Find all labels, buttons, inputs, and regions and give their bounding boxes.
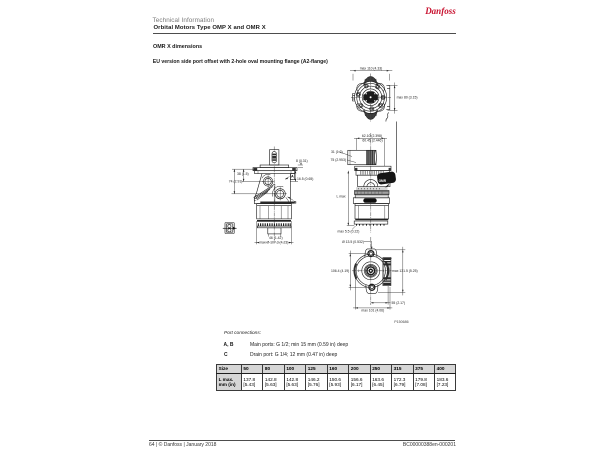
svg-text:55 (2.17): 55 (2.17) [392, 301, 406, 305]
svg-text:74 (2.91): 74 (2.91) [229, 180, 243, 184]
svg-text:P150686: P150686 [394, 320, 408, 324]
svg-text:106.4 (4.19): 106.4 (4.19) [331, 269, 349, 273]
svg-text:46 (1.42): 46 (1.42) [269, 236, 283, 240]
svg-text:A: A [291, 174, 294, 178]
svg-text:B: B [294, 201, 297, 205]
svg-text:L max: L max [337, 195, 346, 199]
svg-text:max Ø 107.3 (4.23): max Ø 107.3 (4.23) [259, 241, 288, 245]
svg-text:31 (1.2): 31 (1.2) [331, 150, 343, 154]
svg-text:Ø 13.5 (0.532): Ø 13.5 (0.532) [342, 240, 364, 244]
svg-text:max 80 (3.15): max 80 (3.15) [397, 96, 418, 100]
svg-text:OMR: OMR [379, 179, 387, 183]
svg-text:60.45 (2.446): 60.45 (2.446) [362, 139, 382, 143]
svg-text:38 (1.5): 38 (1.5) [237, 172, 249, 176]
svg-text:max 110 (4.33): max 110 (4.33) [360, 67, 383, 71]
svg-text:8 (0.31): 8 (0.31) [296, 159, 308, 163]
svg-text:max 131.5 (5.25): max 131.5 (5.25) [392, 269, 418, 273]
svg-text:max 101 (4.06): max 101 (4.06) [361, 308, 384, 312]
svg-text:62.10 (2.398): 62.10 (2.398) [362, 134, 382, 138]
svg-text:75 (2.953): 75 (2.953) [331, 158, 346, 162]
svg-text:max 5.5 (0.22): max 5.5 (0.22) [338, 229, 360, 233]
svg-text:16.5 (0.65): 16.5 (0.65) [297, 177, 313, 181]
